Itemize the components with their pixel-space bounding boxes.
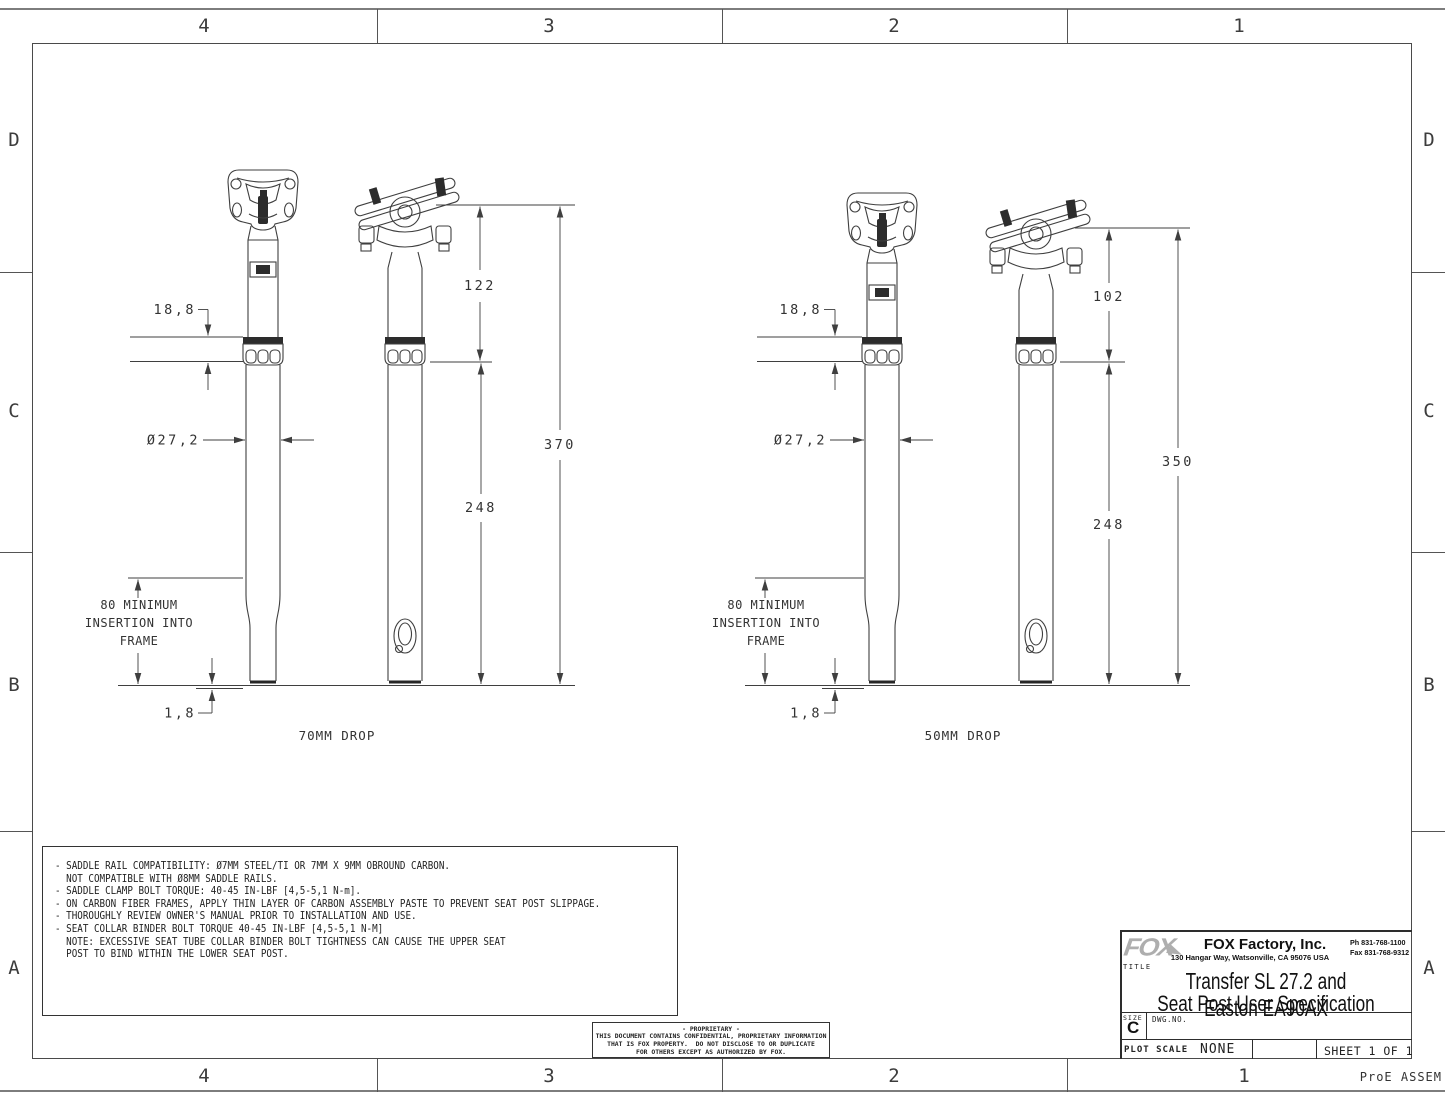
drawing-title-line2: Seat Post User Specification [1152,991,1380,1017]
note-line: - SADDLE RAIL COMPATIBILITY: Ø7MM STEEL/… [55,860,689,873]
svg-text:INSERTION INTO: INSERTION INTO [85,616,193,630]
title-block-divider [1120,1039,1412,1040]
seat-collar [385,337,425,344]
note-line: - SEAT COLLAR BINDER BOLT TORQUE 40-45 I… [55,923,689,936]
dim-tip-70: 1,8 [164,706,196,722]
title-label: TITLE [1123,963,1152,971]
cable-port [394,619,416,653]
seat-collar [243,337,283,344]
title-block-divider [1146,1012,1147,1039]
sheet-number: SHEET 1 OF 1 [1324,1044,1413,1058]
dimensions-50: 18,8 Ø27,2 102 350 248 80 MINIMUM INSERT… [712,228,1194,743]
dim-diameter-70: Ø27,2 [147,433,200,449]
caption-70mm-drop: 70MM DROP [299,728,376,743]
plot-scale-value: NONE [1200,1042,1235,1057]
note-line: - ON CARBON FIBER FRAMES, APPLY THIN LAY… [55,898,689,911]
note-line: POST TO BIND WITHIN THE LOWER SEAT POST. [55,948,689,961]
proprietary-line: FOR OTHERS EXCEPT AS AUTHORIZED BY FOX. [593,1049,829,1057]
svg-text:INSERTION INTO: INSERTION INTO [712,616,820,630]
seat-collar [862,337,902,344]
note-line: - SADDLE CLAMP BOLT TORQUE: 40-45 IN-LBF… [55,885,689,898]
dim-total-70: 370 [544,437,576,453]
cad-system-label: ProE ASSEM [1330,1070,1442,1084]
dim-collar-stack-70: 18,8 [153,302,196,318]
proprietary-notice: - PROPRIETARY - THIS DOCUMENT CONTAINS C… [592,1022,830,1058]
dimensions-70: 18,8 Ø27,2 122 370 248 80 MINIMUM INSERT… [85,205,576,743]
insertion-note-50: 80 MINIMUM [727,598,804,612]
note-line: - THOROUGHLY REVIEW OWNER'S MANUAL PRIOR… [55,910,689,923]
drawing-sheet: 4 3 2 1 4 3 2 1 D C B A D C B A .ln{stro… [0,0,1445,1117]
company-name: FOX Factory, Inc. [1190,936,1340,953]
dim-lower-50: 248 [1093,517,1125,533]
company-address: 130 Hangar Way, Watsonville, CA 95076 US… [1150,953,1350,962]
plot-scale-label: PLOT SCALE [1124,1045,1188,1055]
seatpost-50-iso-view [985,199,1091,682]
dim-collar-stack-50: 18,8 [779,302,822,318]
title-block-divider [1316,1039,1317,1059]
dim-tip-50: 1,8 [790,706,822,722]
seatpost-70-front-view [228,170,298,682]
title-block-divider [1252,1039,1253,1059]
dim-upper-50: 102 [1093,289,1125,305]
company-fax: Fax 831-768-9312 [1350,948,1412,957]
dim-diameter-50: Ø27,2 [774,433,827,449]
seatpost-70-iso-view [354,177,460,682]
size-value: C [1127,1018,1139,1038]
dim-upper-70: 122 [464,278,496,294]
notes-box: - SADDLE RAIL COMPATIBILITY: Ø7MM STEEL/… [42,846,678,1016]
seatpost-50-front-view [847,193,917,682]
insertion-note-70: 80 MINIMUM [100,598,177,612]
cable-port [1025,619,1047,653]
dwg-no-label: DWG.NO. [1152,1015,1187,1024]
note-line: NOTE: EXCESSIVE SEAT TUBE COLLAR BINDER … [55,936,689,949]
svg-text:FRAME: FRAME [120,634,159,648]
note-line: NOT COMPATIBLE WITH Ø8MM SADDLE RAILS. [55,873,689,886]
dim-total-50: 350 [1162,454,1194,470]
svg-text:FRAME: FRAME [747,634,786,648]
title-block-border [1120,930,1412,932]
seat-collar [1016,337,1056,344]
caption-50mm-drop: 50MM DROP [925,728,1002,743]
company-phone: Ph 831-768-1100 [1350,938,1412,947]
dim-lower-70: 248 [465,500,497,516]
